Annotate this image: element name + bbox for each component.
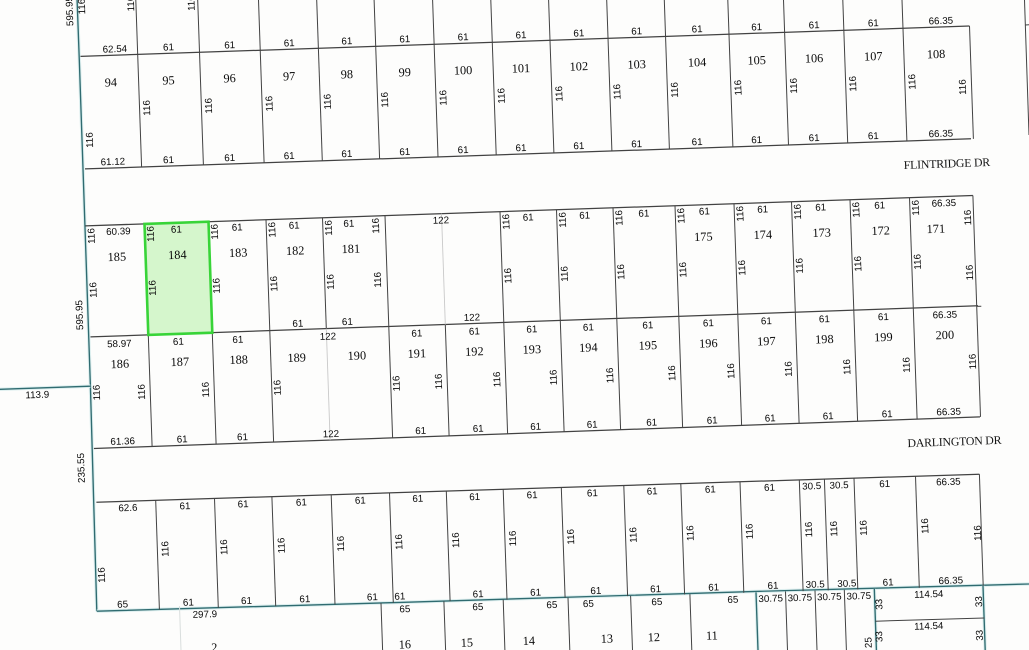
svg-text:235.55: 235.55 (76, 452, 88, 483)
svg-text:61: 61 (412, 494, 423, 505)
svg-text:61: 61 (703, 318, 714, 329)
svg-text:199: 199 (874, 330, 893, 345)
svg-text:116: 116 (744, 523, 756, 540)
svg-text:114.54: 114.54 (914, 589, 944, 601)
svg-text:122: 122 (433, 215, 450, 227)
svg-text:61: 61 (647, 486, 658, 497)
svg-text:61: 61 (526, 324, 537, 335)
svg-text:66.35: 66.35 (928, 128, 953, 140)
svg-text:61: 61 (399, 34, 410, 45)
svg-text:66.35: 66.35 (928, 16, 953, 28)
svg-text:61: 61 (882, 409, 893, 420)
svg-text:116: 116 (554, 85, 566, 102)
svg-text:61: 61 (808, 20, 819, 31)
svg-text:61: 61 (583, 322, 594, 333)
svg-text:61: 61 (573, 28, 584, 39)
svg-text:116: 116 (612, 83, 624, 100)
svg-text:101: 101 (511, 61, 530, 76)
svg-text:116: 116 (676, 207, 688, 224)
svg-text:185: 185 (107, 249, 126, 264)
svg-text:186: 186 (110, 357, 129, 372)
svg-text:61: 61 (163, 155, 174, 166)
svg-text:66.35: 66.35 (932, 310, 957, 322)
svg-text:116: 116 (492, 371, 504, 388)
svg-text:116: 116 (496, 87, 508, 104)
svg-text:297.9: 297.9 (192, 609, 217, 621)
svg-text:65: 65 (727, 595, 739, 606)
svg-text:108: 108 (927, 47, 946, 62)
svg-text:30.75: 30.75 (846, 591, 871, 603)
svg-text:61: 61 (757, 204, 768, 215)
svg-text:116: 116 (794, 257, 806, 274)
svg-text:61: 61 (177, 434, 188, 445)
svg-text:116: 116 (973, 525, 985, 542)
svg-text:61: 61 (699, 206, 710, 217)
svg-text:191: 191 (407, 346, 426, 361)
svg-text:61: 61 (224, 153, 235, 164)
svg-text:116: 116 (391, 375, 403, 392)
svg-text:116: 116 (667, 365, 679, 382)
svg-text:11: 11 (706, 628, 718, 642)
svg-text:61: 61 (473, 424, 484, 435)
svg-text:65: 65 (117, 599, 129, 610)
svg-text:116: 116 (97, 567, 109, 584)
svg-text:116: 116 (264, 95, 276, 112)
svg-text:174: 174 (753, 227, 772, 242)
svg-text:61.36: 61.36 (110, 436, 135, 448)
svg-text:33: 33 (974, 595, 985, 607)
svg-text:61: 61 (882, 577, 893, 588)
svg-text:116: 116 (789, 77, 801, 94)
svg-text:30.5: 30.5 (802, 481, 822, 493)
svg-text:30.5: 30.5 (805, 579, 825, 591)
svg-text:116: 116 (559, 265, 571, 282)
svg-text:182: 182 (286, 243, 305, 258)
svg-text:61.12: 61.12 (100, 156, 125, 168)
svg-text:173: 173 (812, 225, 831, 240)
svg-text:189: 189 (287, 350, 306, 365)
svg-text:116: 116 (336, 535, 348, 552)
svg-text:116: 116 (325, 273, 337, 290)
svg-text:188: 188 (229, 352, 248, 367)
svg-text:106: 106 (805, 51, 824, 66)
svg-text:66.35: 66.35 (936, 407, 961, 419)
svg-text:116: 116 (853, 255, 865, 272)
svg-text:116: 116 (204, 97, 216, 114)
svg-text:61: 61 (237, 432, 248, 443)
svg-text:116: 116 (86, 227, 98, 244)
svg-text:61: 61 (173, 337, 184, 348)
svg-text:61: 61 (638, 208, 649, 219)
svg-text:116: 116 (848, 75, 860, 92)
svg-text:62.6: 62.6 (118, 503, 138, 515)
svg-text:103: 103 (627, 57, 646, 72)
svg-text:61: 61 (341, 149, 352, 160)
svg-text:116: 116 (272, 379, 284, 396)
svg-text:122: 122 (323, 429, 340, 441)
svg-text:61: 61 (819, 314, 830, 325)
svg-text:116: 116 (371, 217, 383, 234)
svg-text:33: 33 (874, 598, 885, 610)
svg-text:61: 61 (457, 145, 468, 156)
svg-text:61: 61 (823, 411, 834, 422)
svg-text:94: 94 (104, 75, 117, 89)
svg-text:61: 61 (879, 479, 890, 490)
svg-text:61: 61 (868, 131, 879, 142)
svg-text:116: 116 (670, 81, 682, 98)
svg-text:61: 61 (764, 483, 775, 494)
svg-text:2: 2 (211, 640, 218, 650)
svg-text:65: 65 (472, 602, 484, 613)
svg-text:97: 97 (283, 69, 296, 83)
svg-text:116: 116 (77, 0, 89, 15)
svg-text:61: 61 (284, 38, 295, 49)
svg-text:96: 96 (223, 71, 236, 85)
svg-text:61: 61 (815, 202, 826, 213)
svg-text:98: 98 (340, 67, 353, 81)
svg-text:61: 61 (515, 30, 526, 41)
svg-text:116: 116 (965, 264, 977, 281)
svg-text:65: 65 (651, 597, 663, 608)
svg-text:116: 116 (907, 73, 919, 90)
svg-text:61: 61 (179, 501, 190, 512)
svg-text:105: 105 (747, 53, 766, 68)
svg-text:192: 192 (465, 344, 484, 359)
svg-text:12: 12 (647, 630, 660, 644)
svg-text:61: 61 (708, 582, 719, 593)
svg-text:116: 116 (210, 223, 222, 240)
svg-text:61: 61 (296, 497, 307, 508)
svg-text:61: 61 (707, 415, 718, 426)
svg-text:61: 61 (183, 597, 194, 608)
svg-text:190: 190 (347, 348, 366, 363)
svg-text:116: 116 (558, 211, 570, 228)
svg-text:30.75: 30.75 (817, 592, 842, 604)
svg-text:61: 61 (341, 36, 352, 47)
svg-text:61: 61 (457, 32, 468, 43)
svg-text:61: 61 (526, 490, 537, 501)
svg-text:61: 61 (299, 594, 310, 605)
svg-text:116: 116 (186, 0, 198, 11)
svg-text:16: 16 (398, 637, 411, 650)
svg-text:116: 116 (548, 369, 560, 386)
svg-text:116: 116 (678, 261, 690, 278)
svg-text:122: 122 (464, 312, 481, 324)
svg-text:116: 116 (451, 532, 463, 549)
svg-text:61: 61 (469, 492, 480, 503)
svg-text:61: 61 (587, 488, 598, 499)
svg-text:99: 99 (398, 65, 411, 79)
svg-text:61: 61 (878, 312, 889, 323)
svg-text:116: 116 (146, 225, 158, 242)
svg-text:13: 13 (600, 631, 613, 645)
svg-text:116: 116 (804, 521, 816, 538)
svg-text:184: 184 (168, 247, 187, 262)
svg-text:113.9: 113.9 (25, 390, 49, 402)
svg-text:65: 65 (546, 600, 558, 611)
svg-text:61: 61 (415, 426, 426, 437)
svg-text:116: 116 (735, 205, 747, 222)
svg-text:116: 116 (147, 279, 159, 296)
svg-text:116: 116 (126, 0, 138, 12)
svg-text:116: 116 (324, 219, 336, 236)
svg-text:104: 104 (688, 55, 707, 70)
svg-text:61: 61 (163, 42, 174, 53)
svg-text:30.75: 30.75 (787, 592, 812, 604)
svg-text:61: 61 (232, 335, 243, 346)
svg-text:58.97: 58.97 (107, 338, 132, 350)
svg-text:116: 116 (912, 253, 924, 270)
svg-text:61: 61 (355, 495, 366, 506)
svg-text:61: 61 (642, 320, 653, 331)
svg-text:116: 116 (88, 281, 100, 298)
svg-text:116: 116 (911, 199, 923, 216)
svg-text:61: 61 (530, 587, 541, 598)
svg-text:116: 116 (219, 539, 231, 556)
svg-text:116: 116 (829, 520, 841, 537)
svg-text:61: 61 (232, 222, 243, 233)
svg-text:116: 116 (605, 367, 617, 384)
svg-text:198: 198 (815, 332, 834, 347)
svg-text:102: 102 (569, 59, 588, 74)
svg-text:116: 116 (901, 356, 913, 373)
svg-text:65: 65 (583, 599, 595, 610)
svg-text:61: 61 (530, 422, 541, 433)
svg-text:62.54: 62.54 (102, 44, 127, 56)
svg-text:181: 181 (341, 241, 360, 256)
svg-text:171: 171 (926, 221, 945, 236)
svg-text:33: 33 (874, 630, 885, 642)
svg-text:61: 61 (523, 212, 534, 223)
svg-text:61: 61 (342, 317, 353, 328)
svg-text:116: 116 (211, 277, 223, 294)
svg-text:200: 200 (935, 328, 954, 343)
svg-text:66.35: 66.35 (931, 198, 956, 210)
svg-text:61: 61 (579, 210, 590, 221)
svg-text:595.95: 595.95 (74, 299, 86, 330)
svg-text:100: 100 (454, 63, 473, 78)
svg-text:116: 116 (142, 99, 154, 116)
svg-text:116: 116 (438, 89, 450, 106)
svg-text:116: 116 (92, 384, 104, 401)
svg-text:116: 116 (963, 209, 975, 226)
svg-text:61: 61 (808, 133, 819, 144)
svg-text:61: 61 (691, 137, 702, 148)
svg-text:116: 116 (503, 267, 515, 284)
svg-text:61: 61 (515, 143, 526, 154)
svg-text:61: 61 (691, 24, 702, 35)
svg-text:61: 61 (469, 326, 480, 337)
svg-text:61: 61 (241, 596, 252, 607)
svg-text:122: 122 (320, 331, 337, 343)
svg-text:61: 61 (289, 220, 300, 231)
svg-text:116: 116 (614, 209, 626, 226)
svg-text:61: 61 (292, 319, 303, 330)
svg-text:61: 61 (868, 18, 879, 29)
svg-text:595.95: 595.95 (64, 0, 76, 26)
svg-text:61: 61 (399, 147, 410, 158)
svg-text:116: 116 (137, 383, 149, 400)
svg-text:61: 61 (573, 141, 584, 152)
svg-text:116: 116 (434, 373, 446, 390)
svg-text:61: 61 (765, 413, 776, 424)
svg-text:116: 116 (958, 79, 970, 96)
svg-text:61: 61 (761, 316, 772, 327)
svg-text:65: 65 (399, 604, 411, 615)
svg-text:61: 61 (411, 328, 422, 339)
svg-text:30.5: 30.5 (837, 578, 857, 590)
svg-text:116: 116 (267, 221, 279, 238)
svg-text:197: 197 (757, 334, 776, 349)
svg-text:61: 61 (751, 135, 762, 146)
svg-text:116: 116 (685, 525, 697, 542)
svg-text:116: 116 (628, 526, 640, 543)
svg-text:196: 196 (699, 336, 718, 351)
svg-text:116: 116 (726, 363, 738, 380)
svg-text:116: 116 (501, 213, 513, 230)
svg-text:116: 116 (733, 79, 745, 96)
svg-text:183: 183 (229, 245, 248, 260)
svg-text:30.75: 30.75 (758, 593, 783, 605)
svg-text:61: 61 (394, 591, 405, 602)
svg-text:116: 116 (566, 528, 578, 545)
svg-text:116: 116 (968, 353, 980, 370)
svg-text:116: 116 (842, 358, 854, 375)
svg-text:60.39: 60.39 (106, 226, 131, 238)
svg-text:66.35: 66.35 (938, 575, 963, 587)
svg-text:114.54: 114.54 (914, 621, 944, 633)
svg-text:116: 116 (373, 271, 385, 288)
svg-text:116: 116 (858, 519, 870, 536)
svg-text:61: 61 (705, 484, 716, 495)
svg-text:61: 61 (284, 151, 295, 162)
svg-text:61: 61 (237, 499, 248, 510)
svg-text:116: 116 (851, 201, 863, 218)
svg-text:116: 116 (616, 263, 628, 280)
svg-text:61: 61 (631, 26, 642, 37)
svg-text:61: 61 (343, 219, 354, 230)
svg-text:61: 61 (646, 417, 657, 428)
svg-text:172: 172 (871, 223, 890, 238)
svg-text:116: 116 (380, 91, 392, 108)
svg-text:116: 116 (269, 275, 281, 292)
svg-text:116: 116 (276, 537, 288, 554)
svg-text:61: 61 (367, 592, 378, 603)
svg-text:30.5: 30.5 (829, 480, 849, 492)
svg-text:66.35: 66.35 (936, 477, 961, 489)
svg-text:95: 95 (162, 73, 175, 87)
svg-text:61: 61 (171, 224, 182, 235)
svg-text:61: 61 (751, 22, 762, 33)
svg-text:116: 116 (160, 540, 172, 557)
svg-text:194: 194 (579, 340, 598, 355)
svg-text:14: 14 (522, 634, 535, 648)
svg-text:116: 116 (85, 132, 97, 149)
svg-text:187: 187 (170, 354, 189, 369)
svg-text:116: 116 (920, 518, 932, 535)
svg-text:61: 61 (767, 581, 778, 592)
svg-text:61: 61 (472, 589, 483, 600)
svg-text:116: 116 (793, 203, 805, 220)
svg-text:116: 116 (322, 93, 334, 110)
svg-text:61: 61 (224, 40, 235, 51)
svg-text:116: 116 (394, 533, 406, 550)
svg-text:116: 116 (737, 259, 749, 276)
svg-text:193: 193 (522, 342, 541, 357)
svg-text:116: 116 (783, 361, 795, 378)
svg-text:25: 25 (863, 636, 874, 648)
svg-text:61: 61 (590, 586, 601, 597)
svg-text:116: 116 (201, 381, 213, 398)
svg-text:195: 195 (638, 338, 657, 353)
svg-text:116: 116 (508, 530, 520, 547)
svg-text:107: 107 (864, 49, 883, 64)
svg-text:61: 61 (587, 420, 598, 431)
svg-text:15: 15 (460, 635, 473, 649)
svg-text:33: 33 (975, 629, 986, 641)
svg-text:175: 175 (694, 229, 713, 244)
svg-text:61: 61 (650, 584, 661, 595)
svg-text:61: 61 (874, 200, 885, 211)
svg-text:61: 61 (631, 139, 642, 150)
